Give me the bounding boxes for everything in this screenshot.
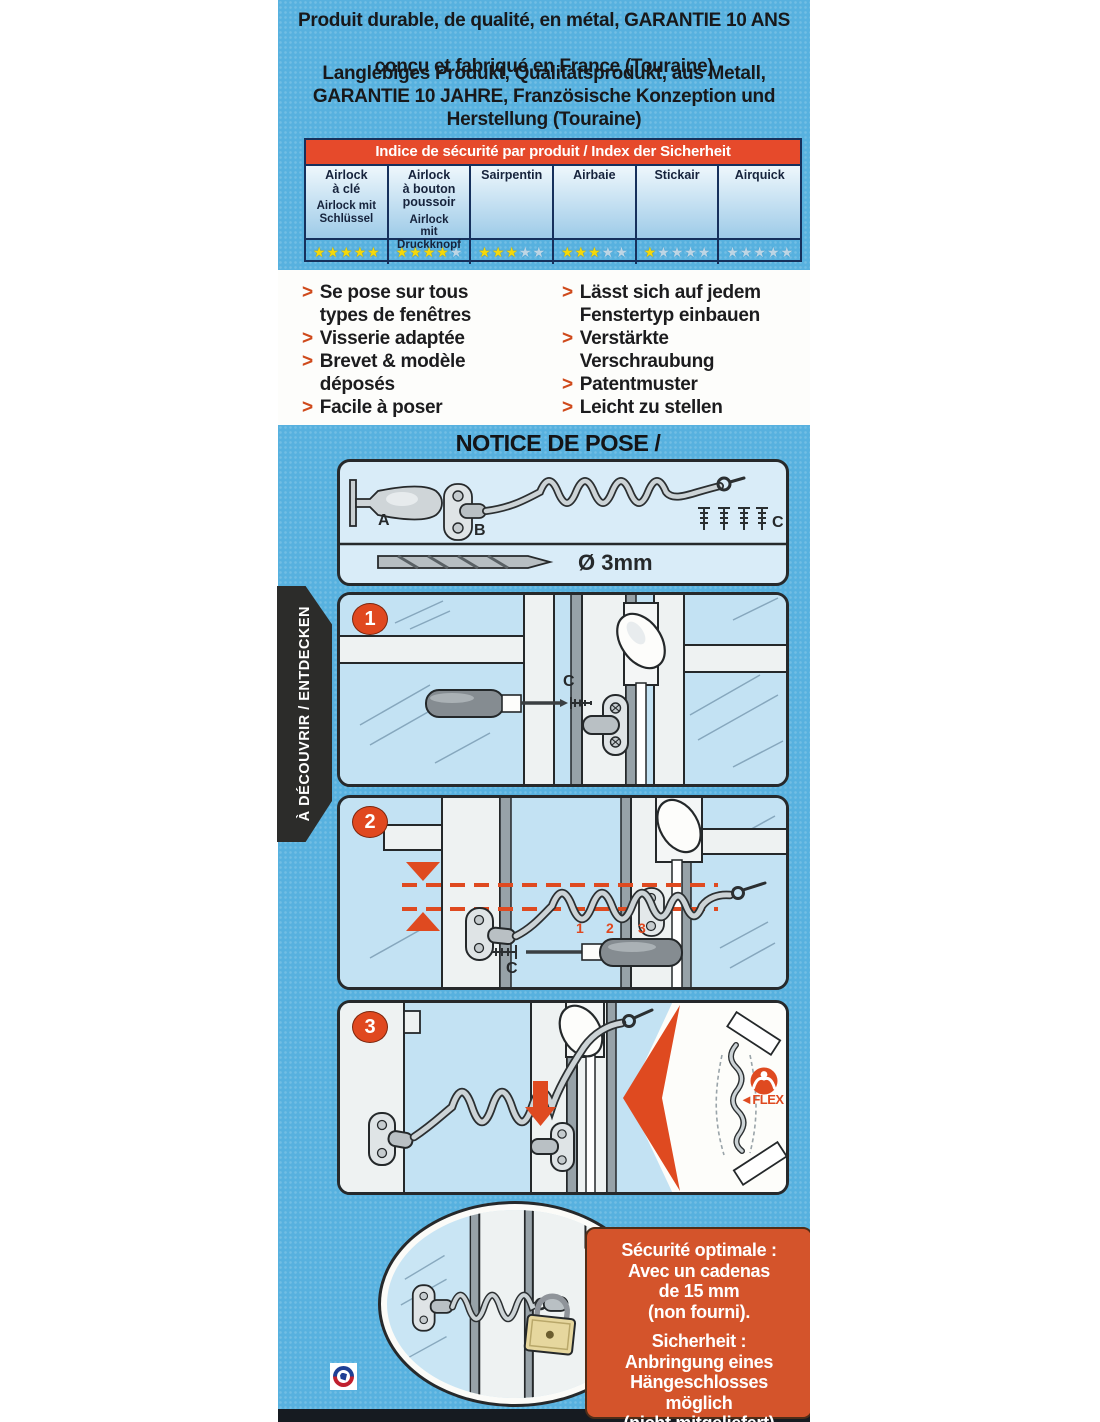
star-empty-icon: ★	[684, 245, 697, 259]
star-filled-icon: ★	[575, 245, 588, 259]
feature-text: Lässt sich auf jedem Fenstertyp einbauen	[580, 281, 761, 327]
star-filled-icon: ★	[436, 245, 449, 259]
bullet-chevron: >	[302, 396, 313, 419]
star-filled-icon: ★	[492, 245, 505, 259]
feature-item: >Visserie adaptée	[302, 327, 534, 350]
france-map-icon	[337, 1370, 350, 1383]
feature-text: Brevet & modèle déposés	[320, 350, 465, 396]
star-filled-icon: ★	[354, 245, 367, 259]
made-in-france-badge	[330, 1363, 357, 1390]
table-col-stickair: Stickair	[637, 166, 720, 238]
parts-diagram-box: A B C Ø 3mm	[337, 459, 789, 586]
star-filled-icon: ★	[478, 245, 491, 259]
bullet-chevron: >	[302, 327, 313, 350]
col-label-fr: Airlock à bouton poussoir	[389, 169, 470, 210]
star-empty-icon: ★	[615, 245, 628, 259]
info-fr-line: (non fourni).	[587, 1302, 810, 1323]
screws-icon	[698, 508, 768, 530]
star-empty-icon: ★	[753, 245, 766, 259]
loop-1-label: 1	[576, 920, 584, 936]
info-de-line: Sicherheit :	[587, 1331, 810, 1352]
features-list-fr: >Se pose sur tous types de fenêtres >Vis…	[302, 281, 534, 419]
flex-label: ◄FLEX	[740, 1092, 784, 1107]
star-empty-icon: ★	[671, 245, 684, 259]
feature-item: >Patentmuster	[562, 373, 804, 396]
feature-text: Se pose sur tous types de fenêtres	[320, 281, 471, 327]
claim-de-line2: GARANTIE 10 JAHRE, Französische Konzepti…	[313, 86, 775, 107]
col-label-fr: Stickair	[637, 169, 718, 183]
feature-text: Patentmuster	[580, 373, 698, 396]
feature-item: >Brevet & modèle déposés	[302, 350, 534, 396]
star-rating: ★★★★★	[637, 240, 720, 264]
col-label-fr: Sairpentin	[471, 169, 552, 183]
table-col-sairpentin: Sairpentin	[471, 166, 554, 238]
star-empty-icon: ★	[602, 245, 615, 259]
star-rating: ★★★★★	[471, 240, 554, 264]
bullet-chevron: >	[562, 281, 573, 327]
col-label-fr: Airquick	[719, 169, 800, 183]
made-in-france-ring	[333, 1366, 354, 1387]
bullet-chevron: >	[302, 350, 313, 396]
feature-item: >Leicht zu stellen	[562, 396, 804, 419]
info-fr-line: Avec un cadenas	[587, 1261, 810, 1282]
star-rating: ★★★★★	[389, 240, 472, 264]
claim-de-line3: Herstellung (Touraine)	[447, 109, 642, 130]
step-2-panel: 2	[337, 795, 789, 990]
star-empty-icon: ★	[781, 245, 794, 259]
star-empty-icon: ★	[740, 245, 753, 259]
col-label-de: Airlock mit Schlüssel	[306, 200, 387, 225]
table-col-airbaie: Airbaie	[554, 166, 637, 238]
col-label-fr: Airbaie	[554, 169, 635, 183]
features-section: >Se pose sur tous types de fenêtres >Vis…	[278, 270, 810, 425]
star-filled-icon: ★	[396, 245, 409, 259]
padlock-info-box: Sécurité optimale : Avec un cadenas de 1…	[585, 1227, 810, 1419]
table-col-airlock-bouton: Airlock à bouton poussoir Airlock mit Dr…	[389, 166, 472, 238]
star-rating: ★★★★★	[306, 240, 389, 264]
step-2-illustration	[340, 798, 786, 987]
loop-2-label: 2	[606, 920, 614, 936]
feature-item: >Se pose sur tous types de fenêtres	[302, 281, 534, 327]
drill-bit-icon	[378, 556, 550, 568]
feature-text: Facile à poser	[320, 396, 443, 419]
info-fr-line: de 15 mm	[587, 1281, 810, 1302]
features-list-de: >Lässt sich auf jedem Fenstertyp einbaue…	[562, 281, 804, 419]
bullet-chevron: >	[302, 281, 313, 327]
star-empty-icon: ★	[533, 245, 546, 259]
part-c-label: C	[772, 514, 784, 532]
star-filled-icon: ★	[423, 245, 436, 259]
discover-ribbon: À DÉCOUVRIR / ENTDECKEN	[277, 586, 332, 842]
part-b-label: B	[474, 522, 486, 540]
ribbon-label: À DÉCOUVRIR / ENTDECKEN	[297, 606, 313, 821]
bullet-chevron: >	[562, 373, 573, 396]
star-empty-icon: ★	[726, 245, 739, 259]
star-filled-icon: ★	[340, 245, 353, 259]
part-a-label: A	[378, 512, 390, 530]
col-label-fr: Airlock à clé	[306, 169, 387, 196]
claim-de-line1: Langlebiges Produkt, Qualitätsprodukt, a…	[322, 63, 765, 84]
step1-screw-label: C	[563, 673, 575, 691]
info-de-line: Anbringung eines	[587, 1352, 810, 1373]
security-table-header-row: Airlock à clé Airlock mit Schlüssel Airl…	[306, 166, 800, 238]
knob-part-icon	[350, 480, 442, 526]
star-empty-icon: ★	[698, 245, 711, 259]
instructions-panel: NOTICE DE POSE / GEBRAUCHSANLEITUNG	[278, 425, 810, 1422]
star-filled-icon: ★	[644, 245, 657, 259]
bullet-chevron: >	[562, 327, 573, 373]
product-claim-de: Langlebiges Produkt, Qualitätsprodukt, a…	[282, 62, 806, 131]
star-filled-icon: ★	[561, 245, 574, 259]
star-filled-icon: ★	[588, 245, 601, 259]
step-2-badge: 2	[352, 806, 388, 838]
info-de-line: (nicht mitgeliefert)	[587, 1413, 810, 1422]
feature-item: >Verstärkte Verschraubung	[562, 327, 804, 373]
info-de-line: möglich	[587, 1393, 810, 1414]
star-filled-icon: ★	[313, 245, 326, 259]
bullet-chevron: >	[562, 396, 573, 419]
strength-icon	[751, 1068, 778, 1095]
feature-item: >Lässt sich auf jedem Fenstertyp einbaue…	[562, 281, 804, 327]
star-empty-icon: ★	[657, 245, 670, 259]
feature-text: Visserie adaptée	[320, 327, 465, 350]
feature-text: Leicht zu stellen	[580, 396, 723, 419]
star-filled-icon: ★	[326, 245, 339, 259]
star-filled-icon: ★	[367, 245, 380, 259]
star-rating: ★★★★★	[554, 240, 637, 264]
star-rating: ★★★★★	[719, 240, 800, 264]
table-col-airquick: Airquick	[719, 166, 800, 238]
parts-illustration	[340, 462, 786, 583]
table-col-airlock-cle: Airlock à clé Airlock mit Schlüssel	[306, 166, 389, 238]
info-fr-line: Sécurité optimale :	[587, 1240, 810, 1261]
star-empty-icon: ★	[767, 245, 780, 259]
top-panel: Produit durable, de qualité, en métal, G…	[278, 0, 810, 270]
security-table-title: Indice de sécurité par produit / Index d…	[306, 140, 800, 166]
step2-screw-label: C	[506, 960, 518, 978]
loop-3-label: 3	[638, 920, 646, 936]
star-empty-icon: ★	[450, 245, 463, 259]
security-index-table: Indice de sécurité par produit / Index d…	[304, 138, 802, 262]
star-filled-icon: ★	[505, 245, 518, 259]
step-3-panel: 3	[337, 1000, 789, 1195]
star-filled-icon: ★	[409, 245, 422, 259]
step-3-illustration	[340, 1003, 786, 1192]
security-table-stars-row: ★★★★★ ★★★★★ ★★★★★ ★★★★★ ★★★★★ ★★★★★	[306, 238, 800, 264]
step-1-badge: 1	[352, 603, 388, 635]
drill-diameter-label: Ø 3mm	[578, 550, 653, 576]
feature-item: >Facile à poser	[302, 396, 534, 419]
feature-text: Verstärkte Verschraubung	[580, 327, 714, 373]
info-de-line: Hängeschlosses	[587, 1372, 810, 1393]
claim-fr-line1: Produit durable, de qualité, en métal, G…	[298, 10, 790, 31]
step-1-panel: 1	[337, 592, 789, 787]
star-empty-icon: ★	[519, 245, 532, 259]
step-3-badge: 3	[352, 1011, 388, 1043]
